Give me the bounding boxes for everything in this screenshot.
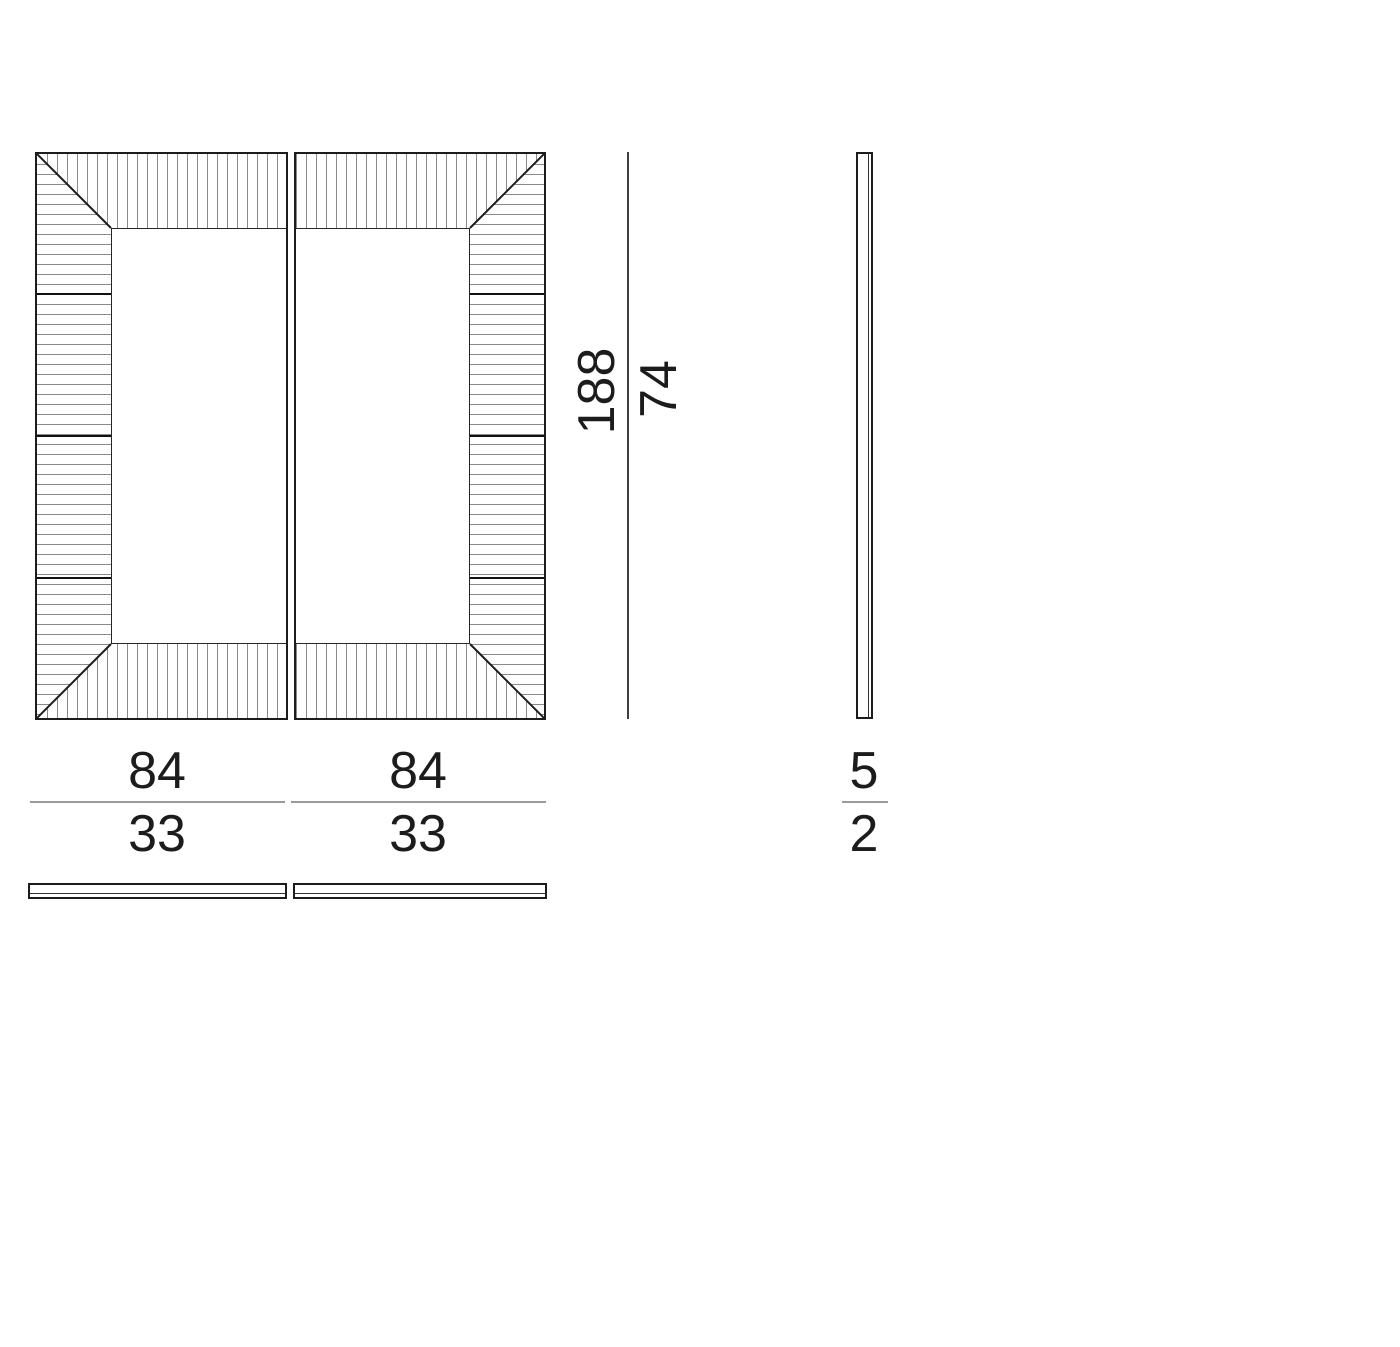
- height-dimension-label-secondary: 74: [633, 360, 685, 418]
- depth-label-primary: 5: [850, 745, 879, 797]
- technical-drawing-canvas: 188 74 84 33 84 33 5 2: [0, 0, 1400, 1347]
- frame-segment-joint: [470, 577, 544, 579]
- width-dimension-line-left: [30, 801, 285, 803]
- side-view-profile: [856, 152, 873, 719]
- depth-label-secondary: 2: [850, 808, 879, 860]
- top-view-face-line: [295, 893, 545, 895]
- height-dimension-line: [627, 152, 629, 719]
- width-left-label-secondary: 33: [128, 808, 186, 860]
- top-view-left-module: [28, 883, 287, 899]
- frame-segment-joint: [37, 577, 111, 579]
- side-view-glass-line: [868, 154, 870, 717]
- frame-segment-joint: [37, 435, 111, 437]
- top-view-right-module: [293, 883, 547, 899]
- front-view-left-module: [35, 152, 288, 720]
- depth-dimension-line: [842, 801, 888, 803]
- front-view-right-module: [294, 152, 546, 720]
- frame-segment-joint: [470, 435, 544, 437]
- width-right-label-primary: 84: [389, 745, 447, 797]
- width-right-label-secondary: 33: [389, 808, 447, 860]
- frame-segment-joint: [470, 293, 544, 295]
- frame-segment-joint: [37, 293, 111, 295]
- top-view-face-line: [30, 893, 285, 895]
- height-dimension-label-primary: 188: [571, 348, 623, 435]
- width-dimension-line-right: [291, 801, 546, 803]
- width-left-label-primary: 84: [128, 745, 186, 797]
